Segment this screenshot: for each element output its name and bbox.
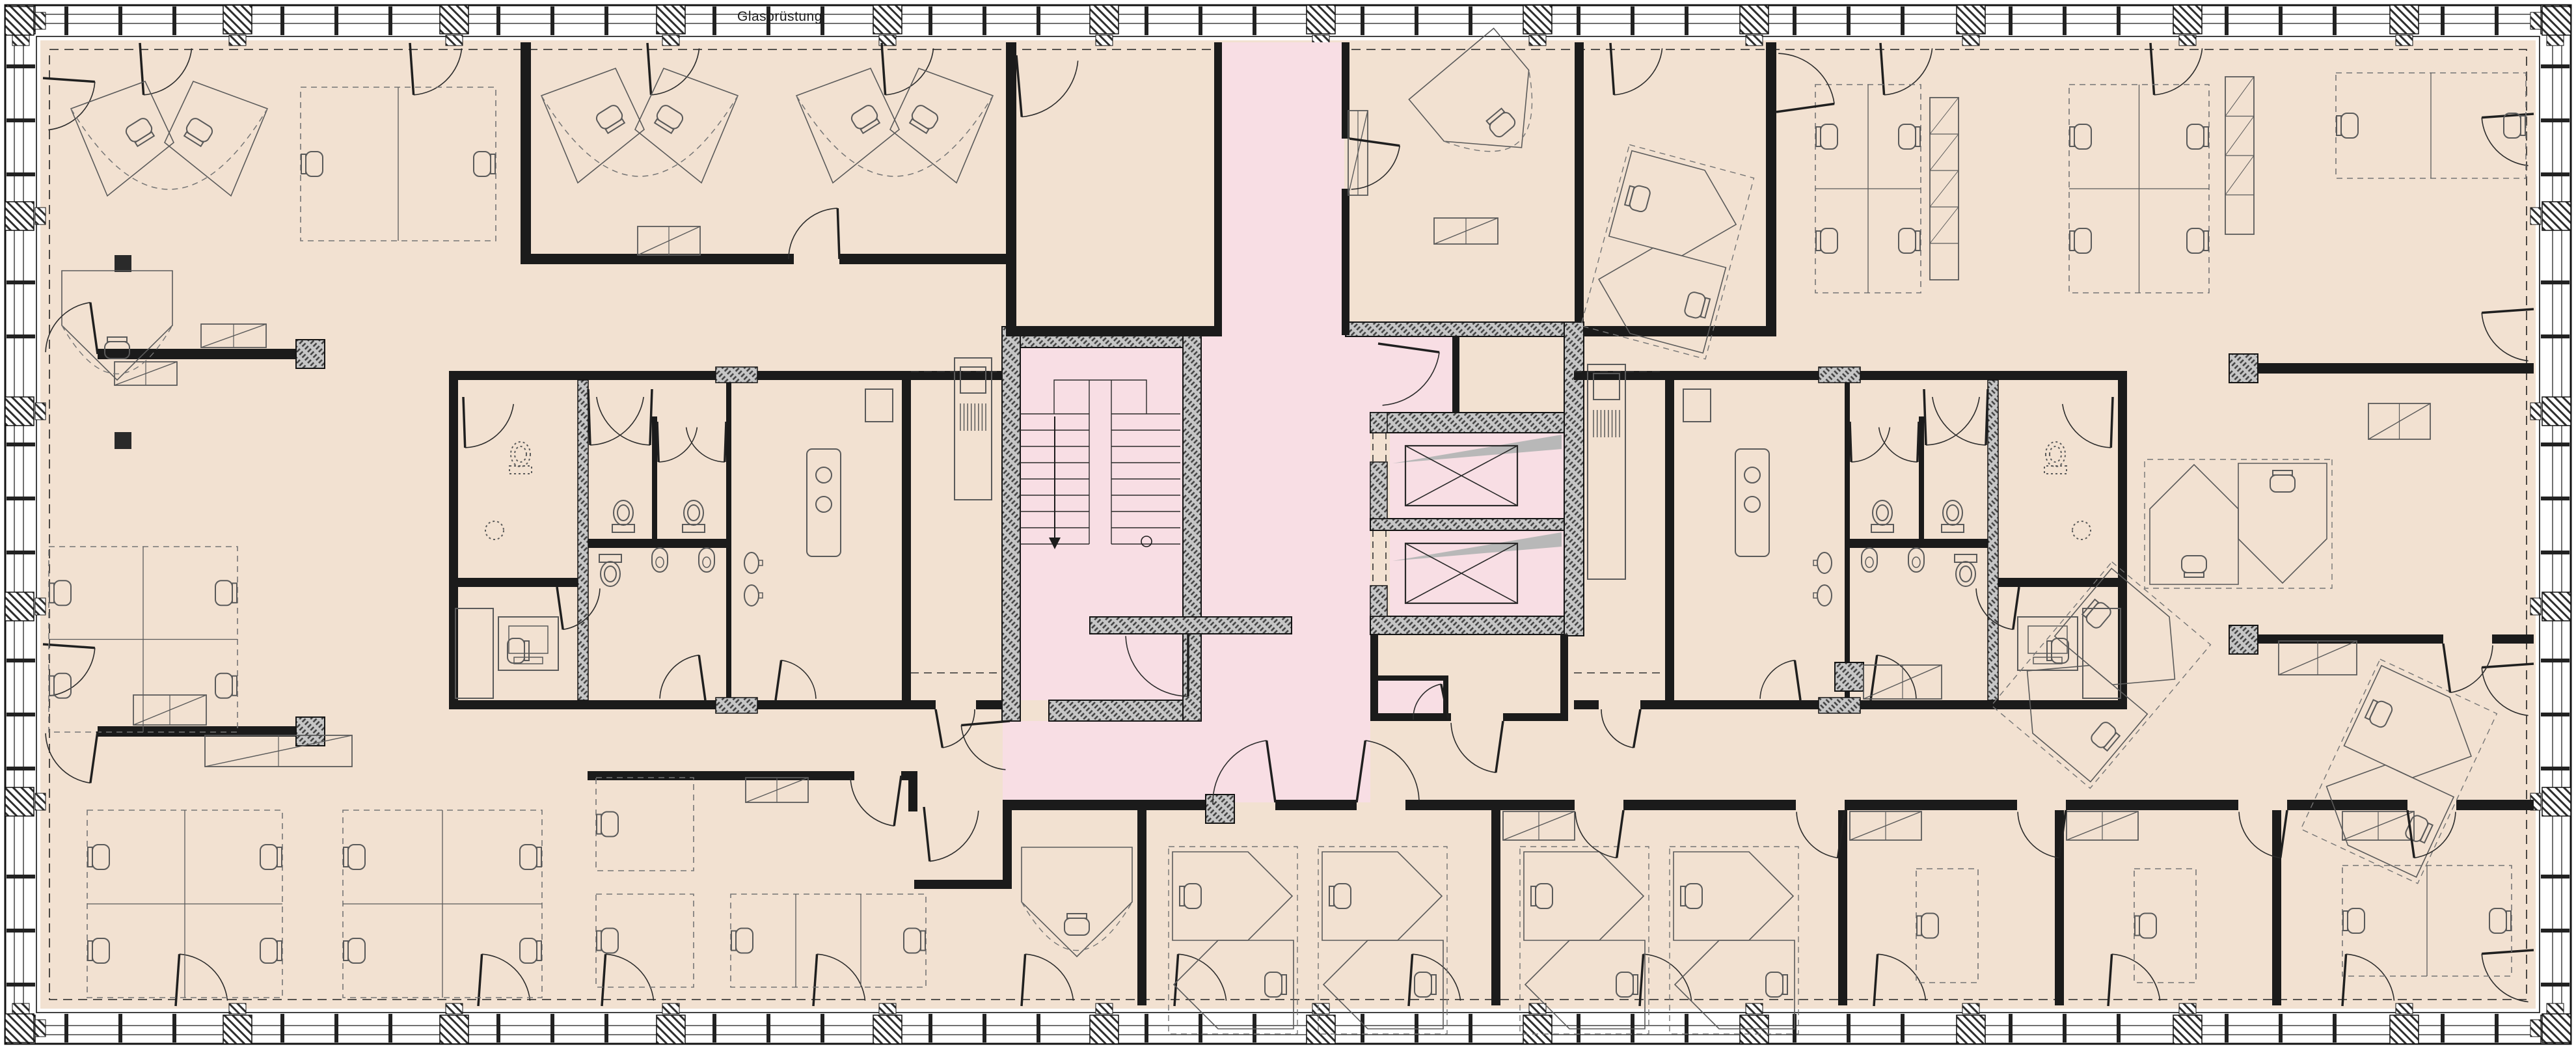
floor-plan-stage: Glasbrüstung <box>0 0 2576 1049</box>
column <box>115 255 131 272</box>
structural-column <box>296 340 325 368</box>
structural-column <box>1835 662 1864 691</box>
structural-column <box>2229 625 2258 654</box>
structural-column <box>296 717 325 746</box>
glass-parapet-label: Glasbrüstung <box>737 9 822 25</box>
column <box>115 432 131 449</box>
structural-column <box>1206 795 1234 823</box>
stair-core <box>1002 327 1201 721</box>
structural-column <box>2229 354 2258 383</box>
floor-plan-drawing <box>0 0 2576 1049</box>
